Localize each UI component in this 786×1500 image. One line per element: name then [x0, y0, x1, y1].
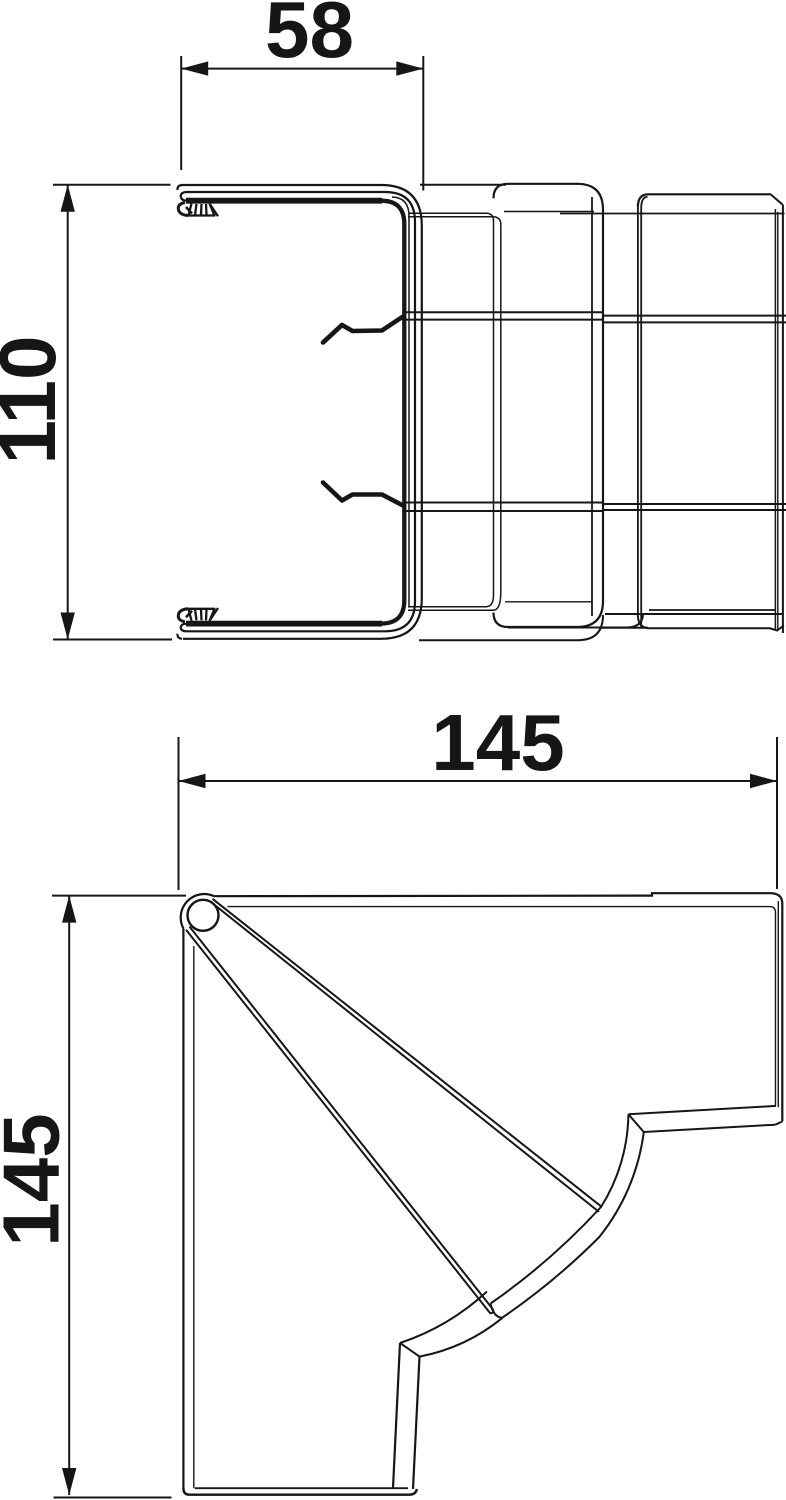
- svg-text:145: 145: [0, 1113, 76, 1246]
- svg-text:145: 145: [431, 698, 564, 787]
- svg-text:58: 58: [265, 0, 354, 74]
- svg-text:110: 110: [0, 335, 72, 464]
